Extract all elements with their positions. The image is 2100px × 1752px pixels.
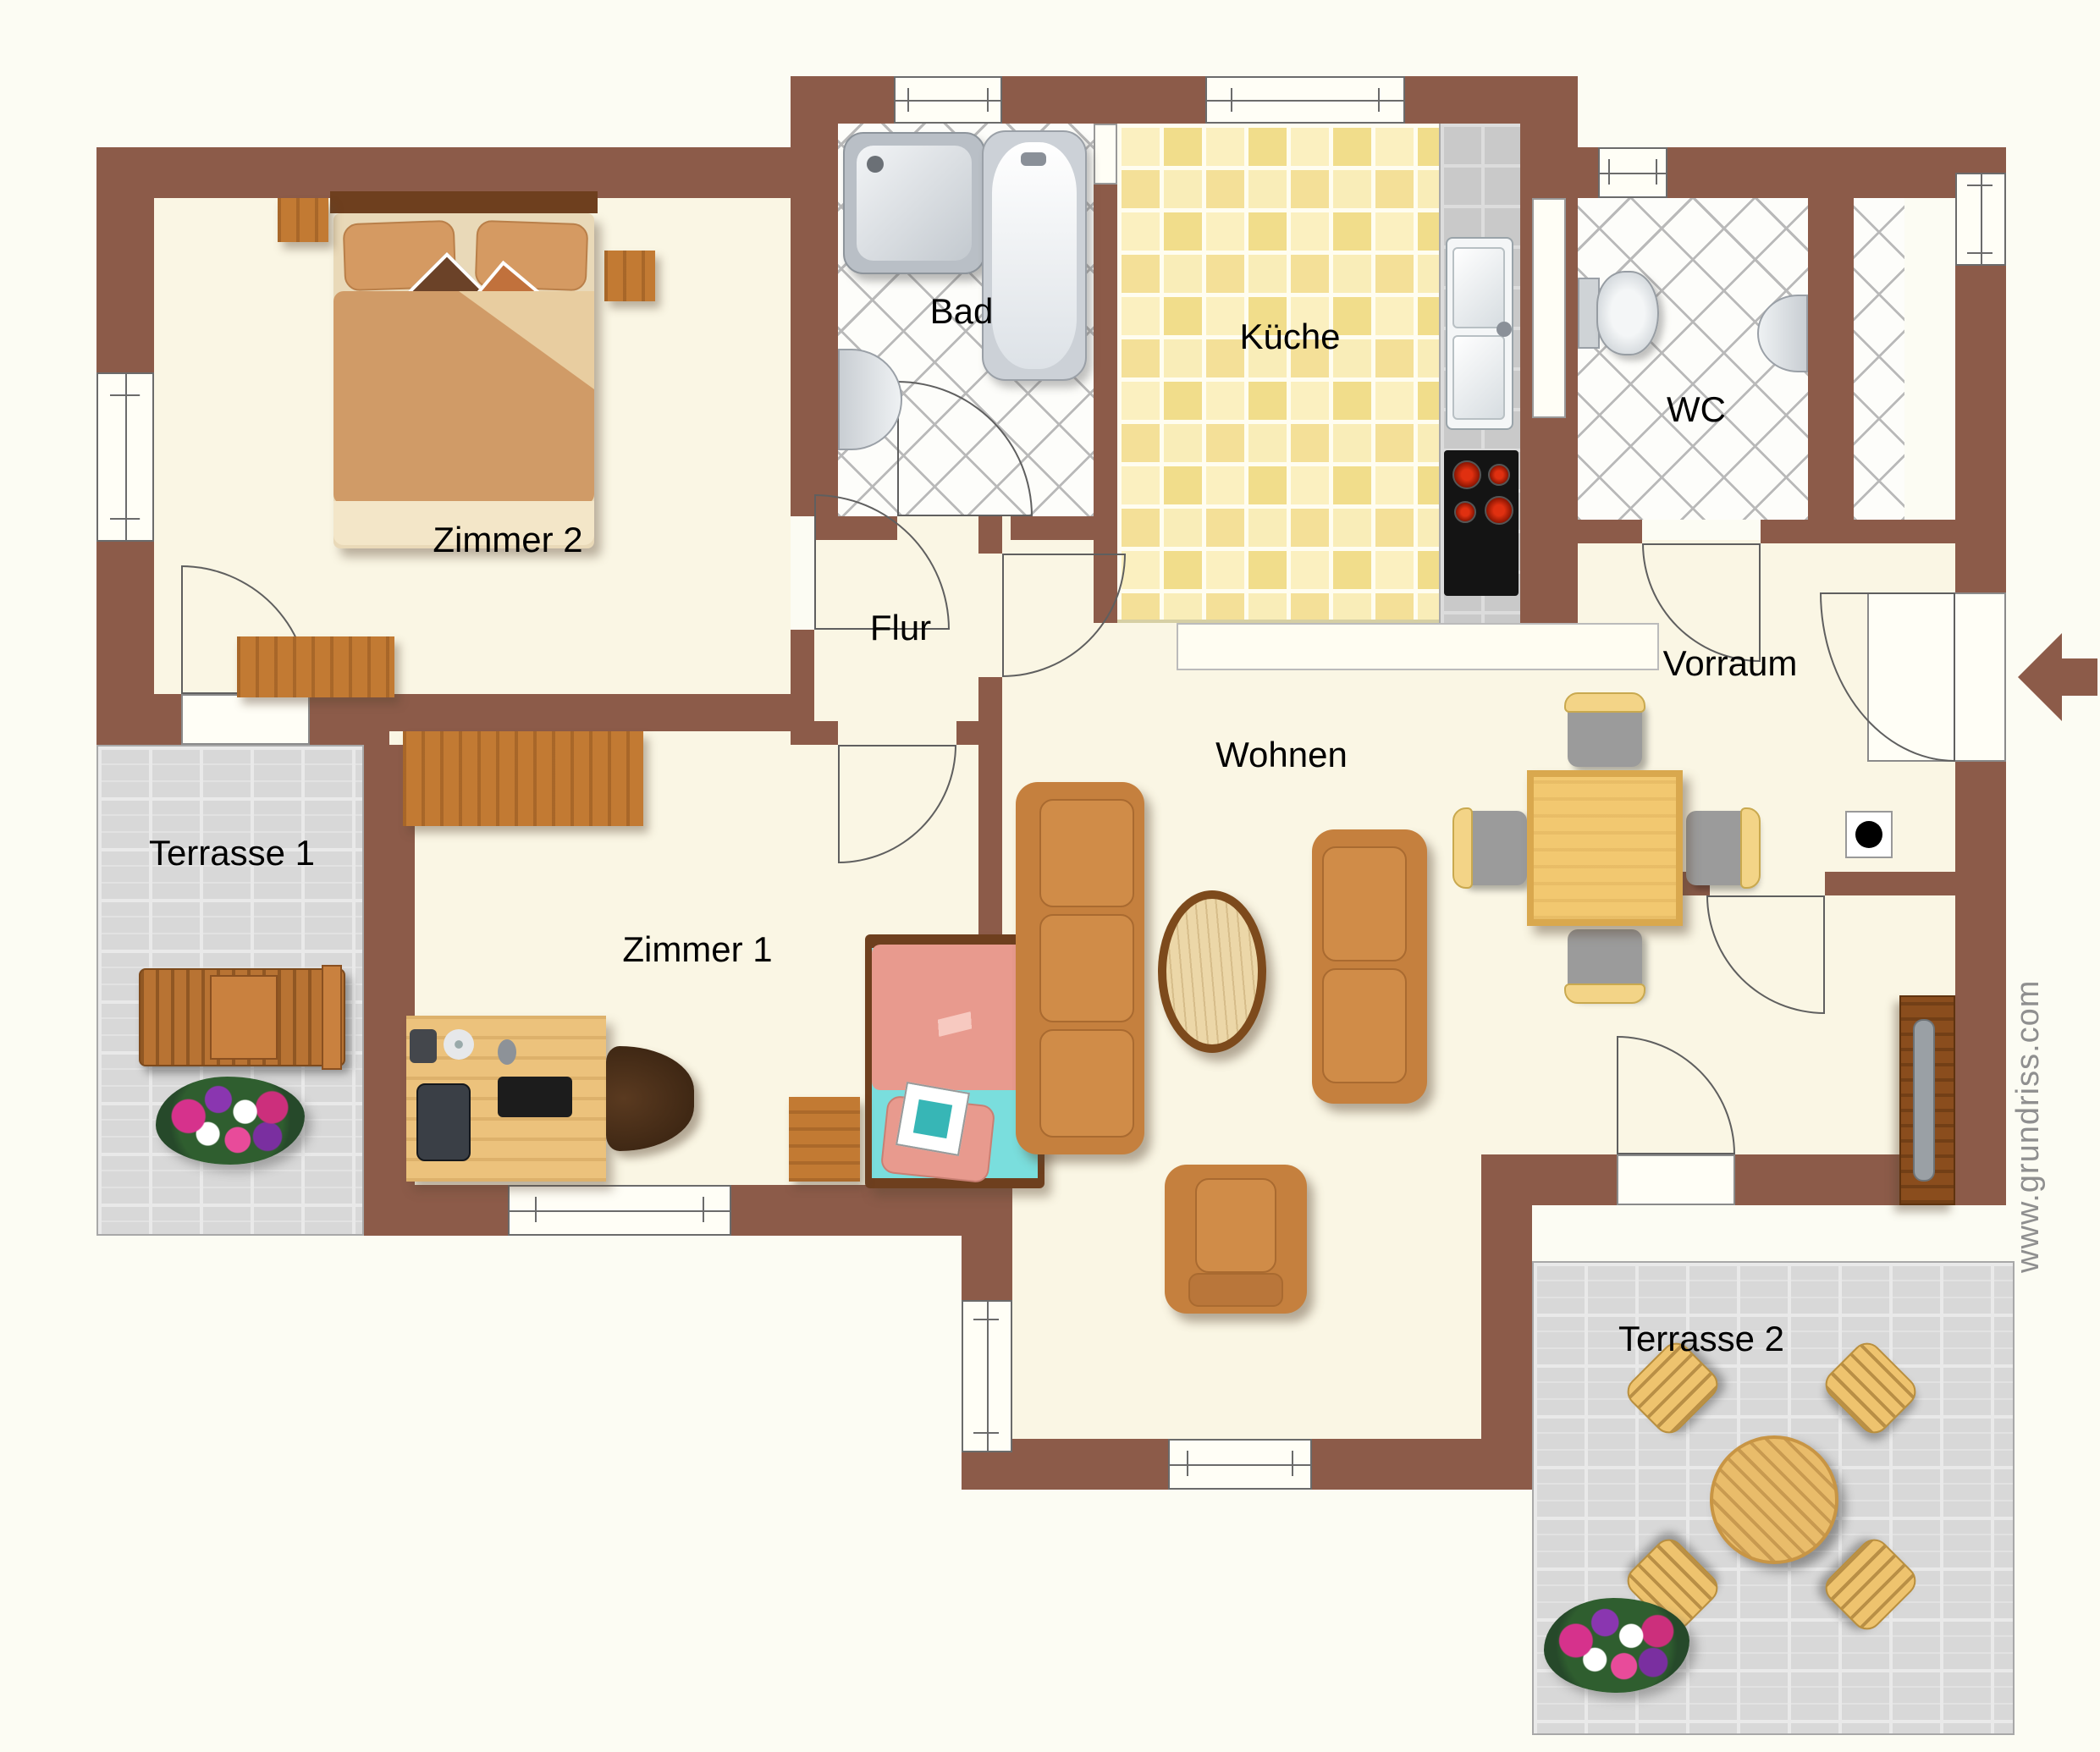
wall xyxy=(389,694,813,731)
kitchen-sink-basin-bottom xyxy=(1452,335,1505,420)
wall xyxy=(791,630,814,694)
sofa-cushion xyxy=(1322,846,1407,961)
wall xyxy=(1554,520,1642,543)
room-label-wohnen: Wohnen xyxy=(1215,736,1348,777)
dining-chair-back xyxy=(1740,807,1761,889)
window xyxy=(1598,147,1667,198)
nightstand xyxy=(604,251,655,301)
bed-headboard xyxy=(330,191,598,213)
room-label-kueche: Küche xyxy=(1239,318,1340,359)
room-label-zimmer2: Zimmer 2 xyxy=(433,521,582,562)
dining-chair-back xyxy=(1452,807,1473,889)
wall xyxy=(1312,1439,1532,1490)
wall xyxy=(1002,76,1205,124)
wall xyxy=(364,1185,508,1236)
watermark: www.grundriss.com xyxy=(2011,978,2055,1275)
wall xyxy=(310,694,389,745)
monitor-icon xyxy=(416,1083,471,1161)
room-label-terrasse1: Terrasse 1 xyxy=(149,835,315,875)
room-label-vorraum: Vorraum xyxy=(1663,645,1798,686)
wall xyxy=(1011,516,1094,540)
wall xyxy=(962,1452,1012,1490)
sofa-cushion xyxy=(1322,968,1407,1083)
sun-lounger-seat xyxy=(210,975,278,1060)
wall xyxy=(1955,762,2006,1154)
wall xyxy=(96,147,791,198)
wall xyxy=(1735,1154,2006,1205)
window xyxy=(1205,76,1405,124)
wall xyxy=(1481,1205,1532,1439)
window xyxy=(96,372,154,542)
mouse-icon xyxy=(498,1039,516,1065)
wall xyxy=(1481,1154,1617,1205)
sun-lounger-headrest xyxy=(322,965,342,1070)
wall xyxy=(96,694,181,745)
wall xyxy=(1808,198,1854,520)
bathtub-faucet-icon xyxy=(1021,152,1046,166)
room-wc-niche-floor xyxy=(1854,198,1904,520)
door-threshold-terrasse2 xyxy=(1617,1154,1735,1205)
wall xyxy=(1825,872,1955,895)
coffee-table-oval xyxy=(1158,890,1266,1053)
wall xyxy=(1955,266,2006,592)
wall xyxy=(791,694,814,745)
terrace-table-round xyxy=(1710,1435,1838,1564)
kitchen-threshold xyxy=(1177,623,1659,670)
bathtub-basin xyxy=(992,142,1077,369)
wardrobe xyxy=(403,731,643,826)
room-label-terrasse2: Terrasse 2 xyxy=(1618,1320,1784,1361)
dining-chair-back xyxy=(1564,983,1645,1004)
wall xyxy=(814,721,838,745)
window xyxy=(962,1300,1012,1452)
shower-drain-icon xyxy=(867,156,884,173)
wall xyxy=(978,516,1002,554)
nightstand xyxy=(278,198,328,242)
toilet xyxy=(1596,271,1659,355)
stove-burner xyxy=(1485,496,1513,525)
wall-niche xyxy=(1094,124,1117,185)
wall xyxy=(731,1185,1012,1236)
window xyxy=(1168,1439,1312,1490)
wall xyxy=(1012,1439,1168,1490)
dining-chair-back xyxy=(1564,692,1645,713)
sofa-cushion xyxy=(1039,799,1134,907)
stove-burner xyxy=(1452,460,1481,489)
entrance-arrow-shaft xyxy=(2060,658,2097,696)
room-label-flur: Flur xyxy=(870,609,931,650)
wall xyxy=(956,721,1002,745)
stove-burner xyxy=(1454,501,1476,523)
room-label-bad: Bad xyxy=(930,293,994,333)
kitchen-faucet-icon xyxy=(1496,322,1512,337)
nightstand xyxy=(789,1097,860,1182)
dining-table xyxy=(1527,770,1683,926)
window xyxy=(508,1185,731,1236)
deco-cushion xyxy=(896,1082,970,1156)
speaker-icon xyxy=(410,1029,437,1063)
wall xyxy=(838,76,894,124)
door-threshold-terrasse1 xyxy=(181,694,310,745)
window xyxy=(1955,173,2006,266)
entrance-arrow-icon xyxy=(2018,633,2062,721)
armchair-seat xyxy=(1195,1178,1276,1273)
wall xyxy=(1955,147,2006,173)
wall xyxy=(791,76,838,516)
wall xyxy=(96,198,154,372)
armchair-footrest xyxy=(1188,1273,1283,1307)
room-label-wc: WC xyxy=(1667,391,1726,432)
sofa-cushion xyxy=(1039,914,1134,1022)
sofa-cushion xyxy=(1039,1029,1134,1138)
kitchen-sink-basin-top xyxy=(1452,247,1505,328)
wall xyxy=(1578,147,1598,198)
window xyxy=(894,76,1002,124)
floor-plan: Zimmer 2 Bad Küche WC Vorraum Flur Zimme… xyxy=(0,0,2100,1752)
utility-dot-icon xyxy=(1855,821,1882,848)
sideboard xyxy=(237,636,394,697)
room-label-zimmer1: Zimmer 1 xyxy=(622,931,772,972)
duvet-fold xyxy=(459,291,594,389)
keyboard-icon xyxy=(498,1077,572,1117)
stove-burner xyxy=(1488,464,1510,486)
disc-icon xyxy=(444,1029,474,1060)
wall xyxy=(1761,520,1955,543)
utility-shaft xyxy=(1532,198,1566,418)
tv-screen-icon xyxy=(1913,1019,1935,1182)
